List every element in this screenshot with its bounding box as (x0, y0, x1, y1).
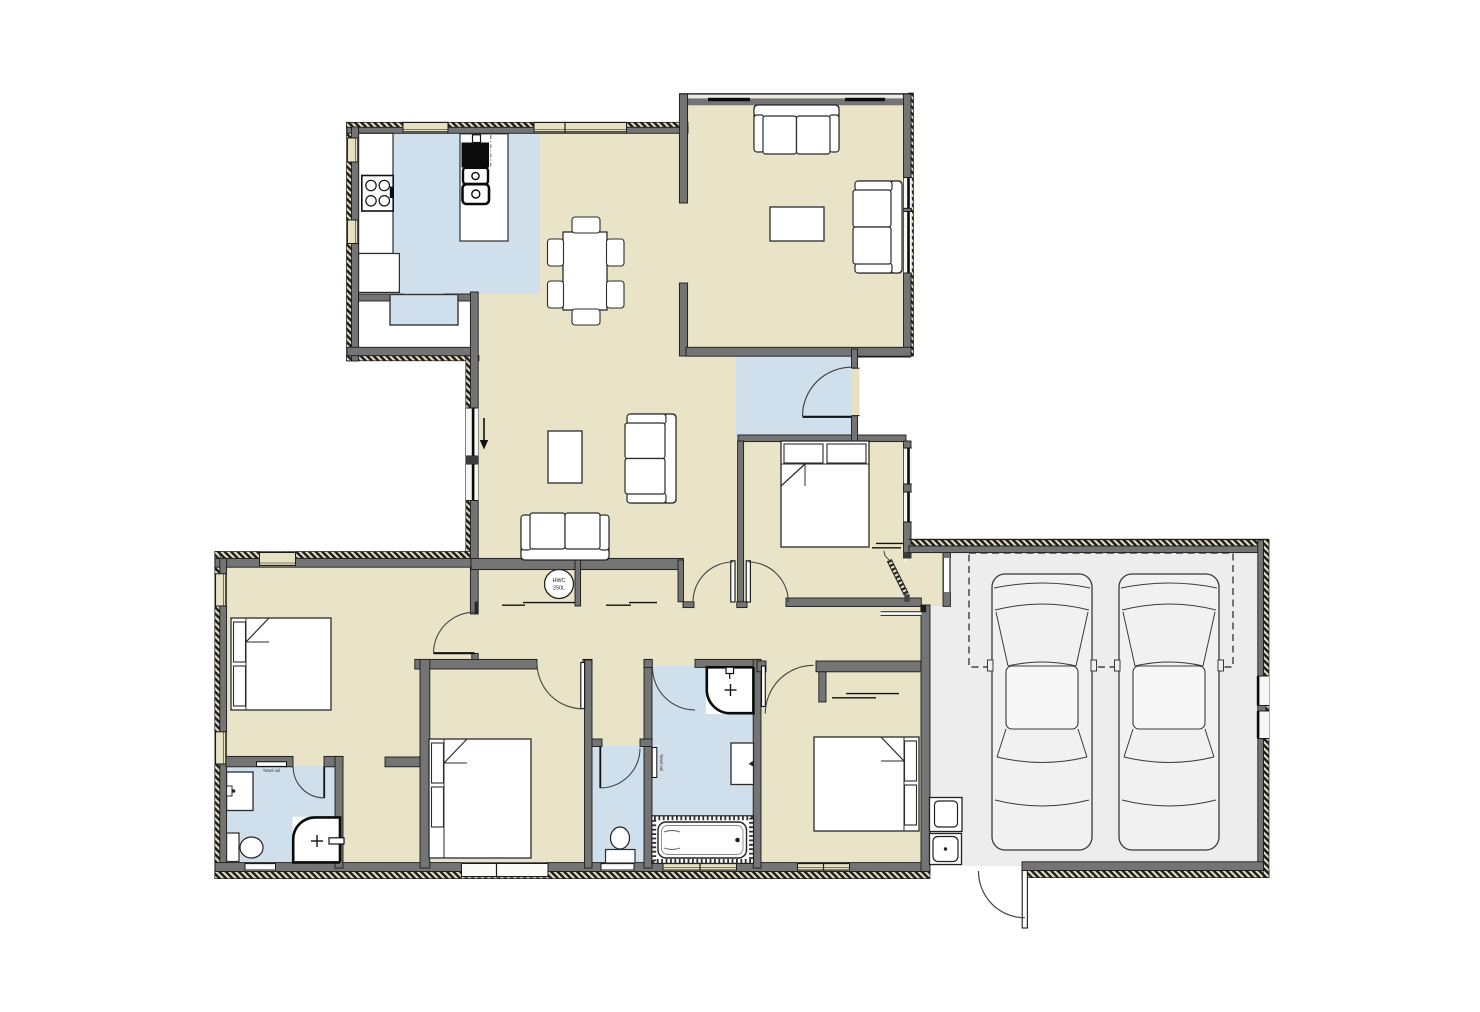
svg-text:250L: 250L (553, 585, 565, 591)
svg-text:HWC: HWC (553, 578, 566, 584)
svg-text:Towel rail: Towel rail (263, 768, 281, 773)
svg-text:Towel rail: Towel rail (659, 754, 664, 772)
